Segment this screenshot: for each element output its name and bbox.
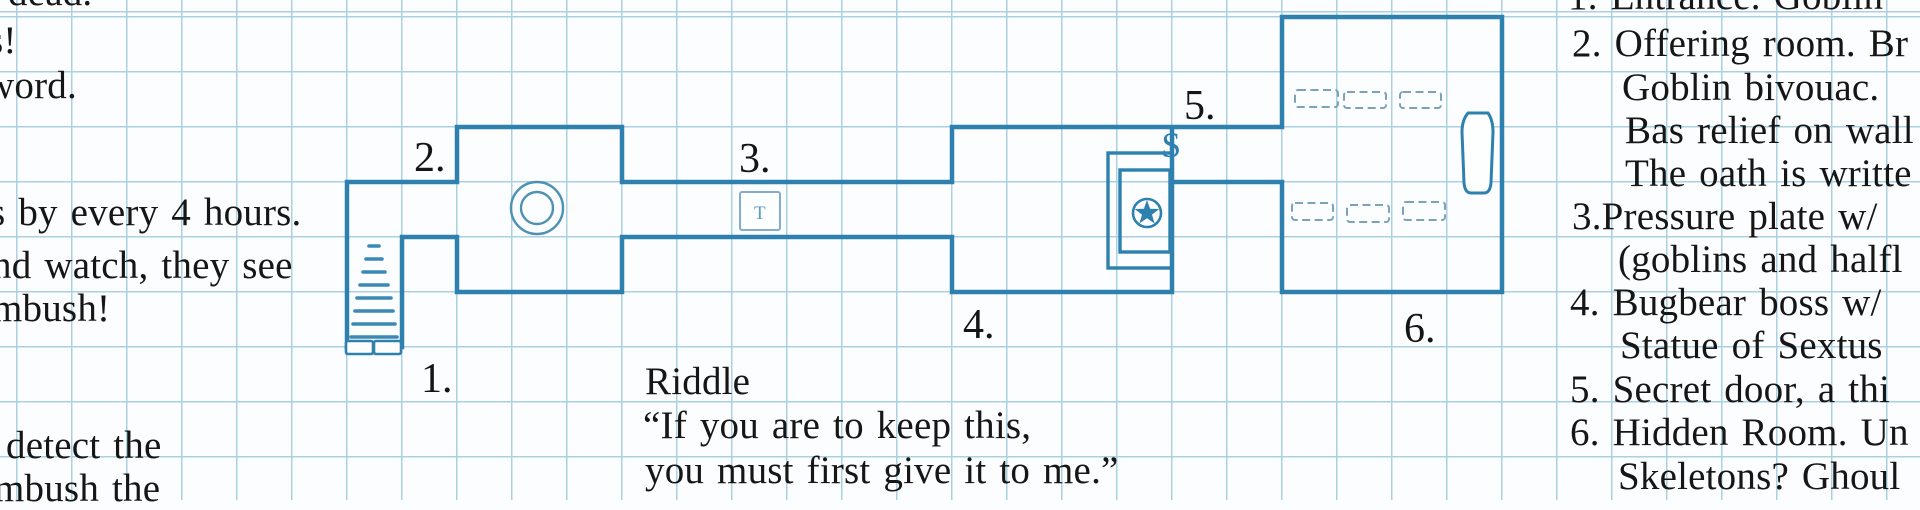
bed-bunks (1292, 90, 1445, 222)
room-label-2: 2. (414, 135, 446, 181)
secret-door-marker: $ (1162, 125, 1180, 165)
riddle-line: you must first give it to me.” (645, 451, 1119, 490)
statue-star-icon (1133, 199, 1161, 227)
bed-icon (1403, 202, 1445, 220)
bed-icon (1400, 92, 1441, 108)
statue-alcove (1108, 153, 1172, 268)
left-note-line: word. (0, 66, 77, 105)
room-label-1: 1. (421, 356, 453, 402)
key-line: 4. Bugbear boss w/ (1570, 283, 1882, 322)
riddle-heading: Riddle (645, 362, 750, 401)
coffin-icon (1462, 113, 1493, 193)
room-label-5: 5. (1184, 83, 1216, 129)
left-note-line: nd watch, they see (0, 246, 293, 285)
bed-icon (1295, 90, 1338, 107)
room-label-4: 4. (963, 302, 995, 348)
left-note-line: s by every 4 hours. (0, 193, 302, 232)
pressure-plate-icon: T (740, 192, 780, 230)
key-line: 1. Entrance. Goblin (1568, 0, 1883, 16)
key-line: Goblin bivouac. (1622, 68, 1879, 107)
graph-paper-background: T 1. 2. 3. 4. 5. 6. $ (0, 0, 1920, 500)
bed-icon (1292, 203, 1333, 220)
dungeon-walls (347, 17, 1502, 347)
bed-icon (1347, 205, 1389, 222)
riddle-line: “If you are to keep this, (643, 406, 1031, 445)
left-note-line: detect the (6, 426, 162, 465)
left-note-line: mbush! (0, 289, 110, 328)
key-line: 5. Secret door, a thi (1570, 370, 1890, 409)
room-label-6: 6. (1404, 306, 1436, 352)
left-note-line: s! (0, 21, 17, 60)
stairs-icon (351, 246, 397, 337)
key-line: Statue of Sextus (1620, 326, 1883, 365)
key-line: (goblins and halfl (1618, 240, 1903, 279)
key-line: 2. Offering room. Br (1572, 24, 1908, 63)
trap-plate-letter: T (754, 203, 766, 224)
bed-icon (1344, 92, 1386, 108)
room-label-3: 3. (739, 136, 771, 182)
left-note-line: dead. (8, 0, 92, 12)
key-line: 6. Hidden Room. Un (1570, 413, 1909, 452)
left-note-line: mbush the (0, 469, 160, 508)
well-icon (511, 182, 563, 234)
double-door-icon (346, 341, 401, 354)
key-line: 3.Pressure plate w/ (1572, 197, 1877, 236)
key-line: The oath is writte (1625, 154, 1912, 193)
key-line: Bas relief on wall (1625, 111, 1914, 150)
key-line: Skeletons? Ghoul (1618, 457, 1900, 496)
